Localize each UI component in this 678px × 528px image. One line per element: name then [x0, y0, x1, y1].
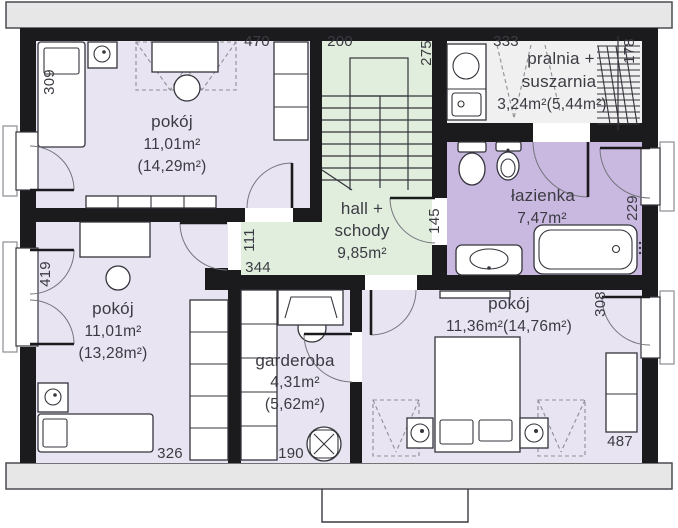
dim-344: 344 — [245, 259, 271, 276]
window — [641, 297, 660, 358]
dim-200: 200 — [327, 33, 353, 50]
floor-plan-page: pokój 11,01m² (14,29m²) hall + schody 9,… — [0, 0, 678, 528]
dim-145: 145 — [426, 208, 443, 234]
garderoba-area-total: (5,62m²) — [265, 396, 325, 413]
dormer-outline — [322, 489, 468, 522]
dim-419: 419 — [37, 261, 54, 287]
dim-308: 308 — [592, 291, 609, 317]
room-bottom-left-area: 11,01m² — [84, 323, 141, 340]
dim-190: 190 — [278, 445, 304, 462]
dim-229: 229 — [624, 195, 641, 221]
desk — [152, 42, 218, 72]
toilet-icon — [459, 153, 485, 185]
window — [16, 132, 38, 190]
nightstand — [38, 383, 68, 412]
hall-name-line1: hall + — [341, 199, 383, 218]
garderoba-area: 4,31m² — [270, 374, 319, 391]
dim-487: 487 — [607, 433, 633, 450]
armchair — [307, 427, 341, 461]
dim-326: 326 — [157, 445, 183, 462]
wardrobe — [190, 300, 228, 460]
bathroom-name: łazienka — [511, 186, 575, 205]
toilet-tank — [458, 142, 486, 152]
dim-178: 178 — [621, 38, 638, 64]
dim-275: 275 — [418, 40, 435, 66]
roof-eave-top — [6, 2, 672, 28]
bathtub-icon — [534, 225, 637, 274]
room-top-left-area-total: (14,29m²) — [138, 158, 207, 175]
room-bottom-left-area-total: (13,28m²) — [79, 345, 148, 362]
bidet-icon — [497, 152, 519, 180]
room-bottom-left-name: pokój — [92, 299, 134, 318]
window-frame — [3, 126, 17, 196]
window-frame — [3, 242, 17, 352]
bedroom-area: 11,36m²(14,76m²) — [446, 318, 572, 335]
floor-plan-canvas: pokój 11,01m² (14,29m²) hall + schody 9,… — [0, 0, 678, 528]
window — [16, 248, 38, 346]
garderoba-name: garderoba — [255, 351, 335, 370]
roof-eave-bottom — [6, 463, 672, 489]
lamp-dot — [102, 50, 106, 54]
desk — [80, 222, 150, 257]
bedroom-name: pokój — [488, 294, 530, 313]
laundry-name-line2: suszarnia — [522, 72, 597, 91]
hall-name-line2: schody — [334, 221, 389, 240]
window — [641, 148, 660, 205]
washer-sink-unit — [447, 44, 486, 120]
window-frame — [660, 142, 674, 211]
chair — [106, 266, 130, 290]
laundry-name-line1: pralnia + — [527, 49, 594, 68]
dim-470: 470 — [244, 33, 270, 50]
chair — [174, 75, 200, 101]
window-frame — [660, 291, 674, 364]
dim-111: 111 — [241, 228, 258, 251]
radiator — [86, 196, 216, 208]
dim-333: 333 — [493, 33, 519, 50]
wardrobe — [274, 42, 308, 140]
laundry-area: 3,24m²(5,44m²) — [497, 96, 607, 113]
hall-area: 9,85m² — [337, 245, 386, 262]
room-top-left-name: pokój — [151, 112, 193, 131]
bed — [38, 414, 153, 452]
nightstand — [520, 418, 548, 448]
wardrobe — [606, 353, 637, 432]
dim-309: 309 — [41, 69, 58, 95]
double-bed — [435, 337, 520, 452]
bathroom-area: 7,47m² — [517, 210, 566, 227]
room-top-left-area: 11,01m² — [143, 136, 200, 153]
